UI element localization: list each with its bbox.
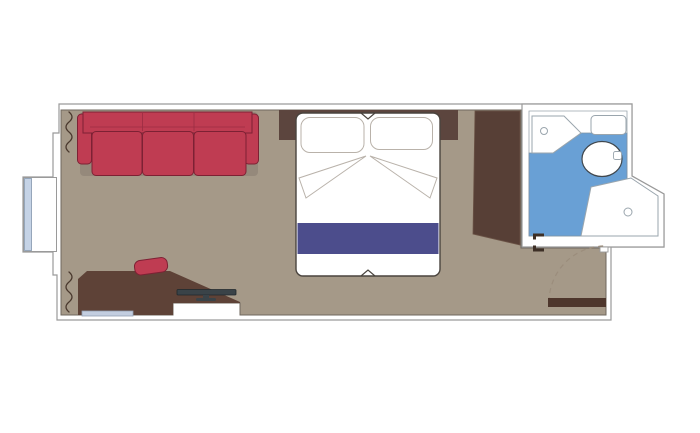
washbasin-drain-icon [541,128,548,135]
sofa-cushion-2 [143,132,194,176]
tv [177,290,236,296]
wardrobe [473,111,520,245]
entry-door-leaf [548,298,606,307]
ledge-shelf [82,311,133,316]
sofa-cushion-3 [194,132,246,176]
shower-drain-icon [624,208,632,216]
tv-stand-base [196,298,216,301]
window-glass [25,179,32,251]
pillow-left [301,118,364,153]
sofa [78,112,259,176]
floorplan-canvas [0,0,700,433]
bathroom [522,104,664,252]
toilet-flush-icon [614,152,622,160]
bathroom-shelf [591,116,626,135]
sofa-backrest [83,112,252,133]
sofa-cushion-1 [92,132,142,176]
pillow-right [371,118,433,150]
door-latch-tab [600,247,608,252]
bed-group [279,110,458,276]
cabin-floorplan [0,0,700,433]
tv-stand-stem [203,295,209,298]
bed-runner [298,223,439,254]
